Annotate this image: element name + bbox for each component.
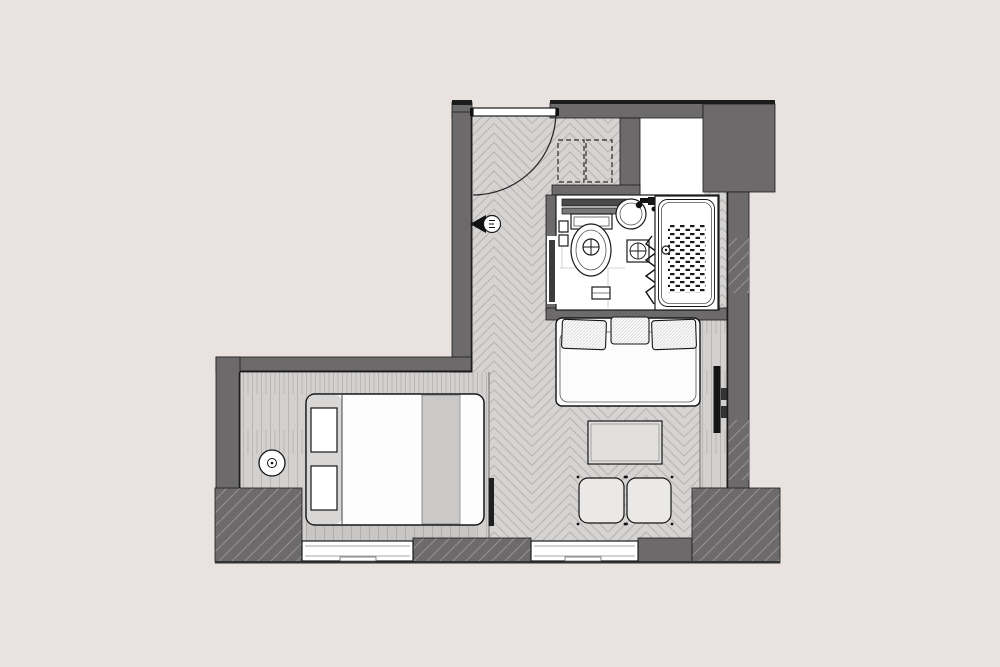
door-jamb-right [556,108,559,116]
wall-bottom-outer-line [215,561,780,564]
wall-right-hatch-2 [727,420,749,480]
wall-block-bottom-right [692,488,780,563]
double-bed [306,394,484,525]
tv-bracket-1 [721,388,727,400]
entrance-door-leaf [473,108,556,116]
window-1-sill-tab [340,557,376,561]
double-bed-pillow-1 [311,408,337,452]
daybed-pillow-1 [561,319,606,350]
window-2 [531,541,638,561]
tv-bracket-2 [721,406,727,418]
coffee-table [588,421,662,464]
wall-top-edge [550,100,775,104]
wall-door-stub-cap [452,100,472,105]
wall-top [550,103,703,118]
daybed-pillow-2 [611,317,649,344]
washbasin-tap-body [640,198,648,203]
tv-screen [714,366,721,433]
wall-entry-left [452,112,472,372]
bathroom-sliding-door [549,240,555,302]
bathroom [547,195,719,310]
floor-plan-svg [0,0,1000,667]
bathtub-drain-dot [665,249,667,251]
wall-block-top-right [703,104,775,192]
double-bed-blanket [422,395,460,524]
wall-bedroom-left [216,357,240,490]
floor-plan-canvas [0,0,1000,667]
bathroom-shelf-upper [562,199,626,206]
toilet-roll-holder-1 [559,221,568,232]
ottoman-1 [579,478,624,523]
window-2-sill-tab [565,557,601,561]
floor-divider-bar [489,478,495,526]
daybed [556,317,700,406]
bathtub-antislip-mat [668,223,706,293]
wall-bottom-mid [413,538,531,562]
window-1 [302,541,413,561]
daybed-pillow-3 [652,319,697,350]
side-table-dot [271,462,274,465]
door-jamb-left [470,108,473,116]
ottoman-2 [627,478,671,523]
side-table [259,450,285,476]
wall-bedroom-top [216,357,472,372]
shaft-area [638,116,704,196]
toilet-roll-holder-2 [559,235,568,246]
double-bed-pillow-2 [311,466,337,510]
wall-right-hatch-1 [727,238,749,293]
wall-bottom-right-seg [638,538,692,562]
wall-block-bottom-left [215,488,302,562]
